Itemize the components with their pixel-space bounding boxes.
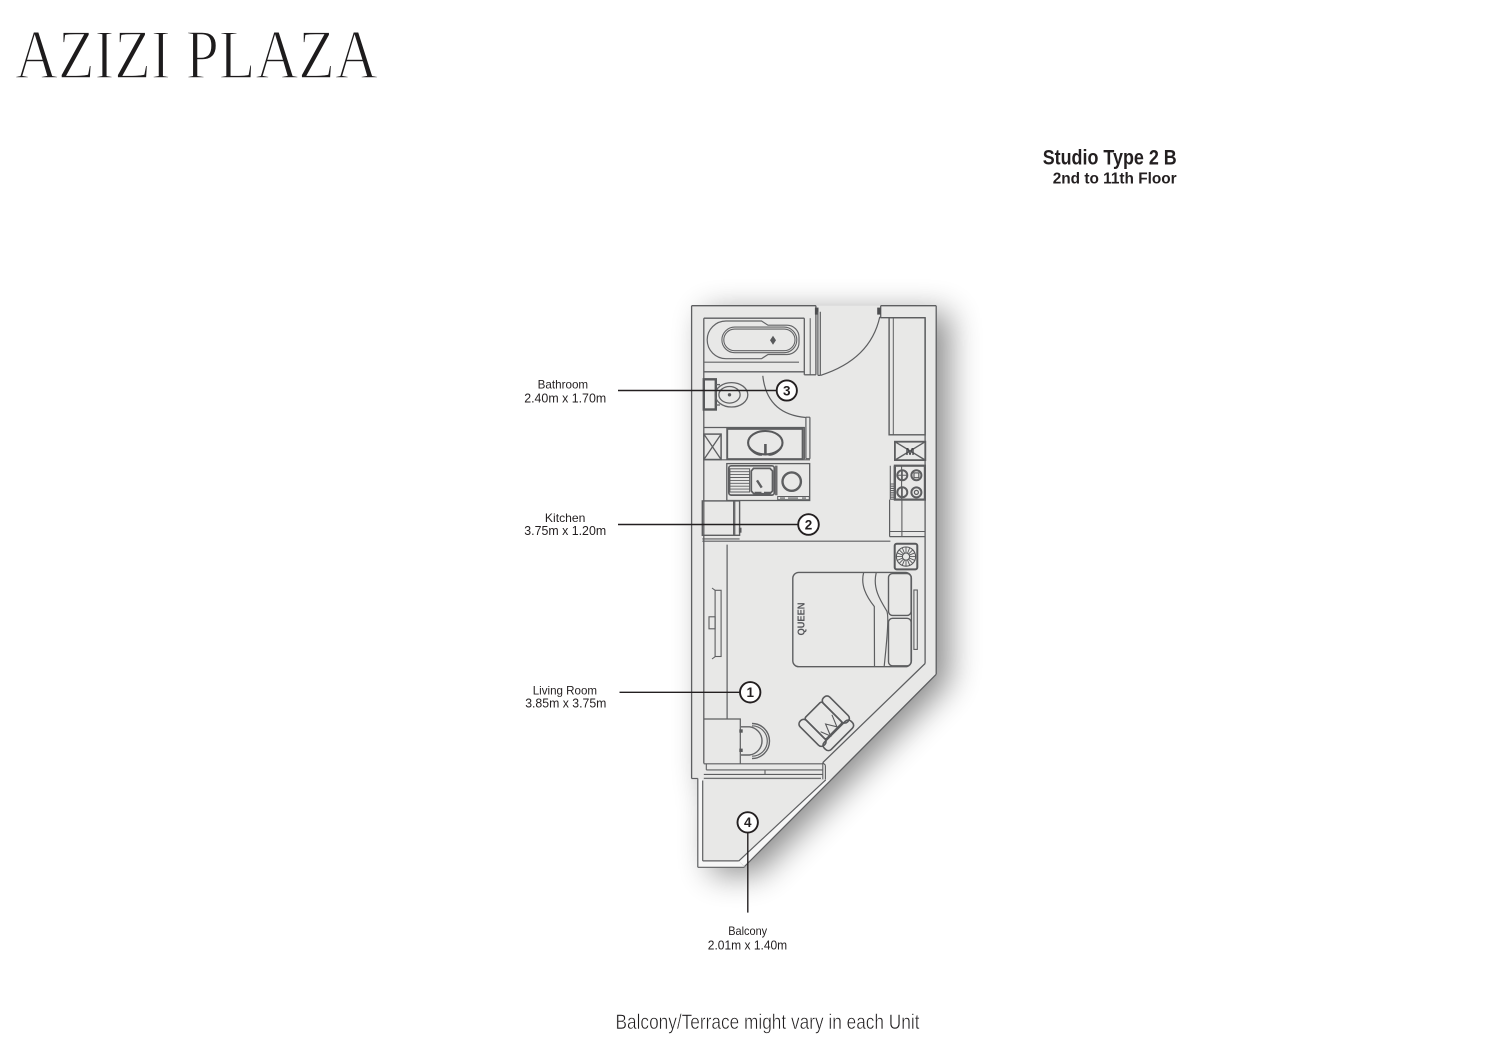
svg-text:Balcony/Terrace might vary in: Balcony/Terrace might vary in each Unit [616, 1011, 920, 1034]
svg-text:3.85m x 3.75m: 3.85m x 3.75m [525, 696, 606, 711]
svg-text:QUEEN: QUEEN [796, 603, 807, 636]
svg-text:Studio Type 2 B: Studio Type 2 B [1043, 146, 1177, 169]
svg-text:3.75m x 1.20m: 3.75m x 1.20m [524, 523, 606, 538]
svg-text:M: M [906, 446, 915, 458]
svg-text:2: 2 [805, 517, 813, 532]
svg-text:1: 1 [746, 685, 754, 700]
svg-text:2.01m x 1.40m: 2.01m x 1.40m [708, 937, 787, 952]
svg-text:3: 3 [783, 383, 791, 398]
svg-text:Balcony: Balcony [728, 924, 767, 938]
svg-text:4: 4 [744, 815, 752, 830]
svg-text:2nd to 11th Floor: 2nd to 11th Floor [1053, 171, 1177, 188]
svg-text:2.40m x 1.70m: 2.40m x 1.70m [524, 390, 606, 405]
svg-text:AZIZI PLAZA: AZIZI PLAZA [15, 17, 378, 94]
